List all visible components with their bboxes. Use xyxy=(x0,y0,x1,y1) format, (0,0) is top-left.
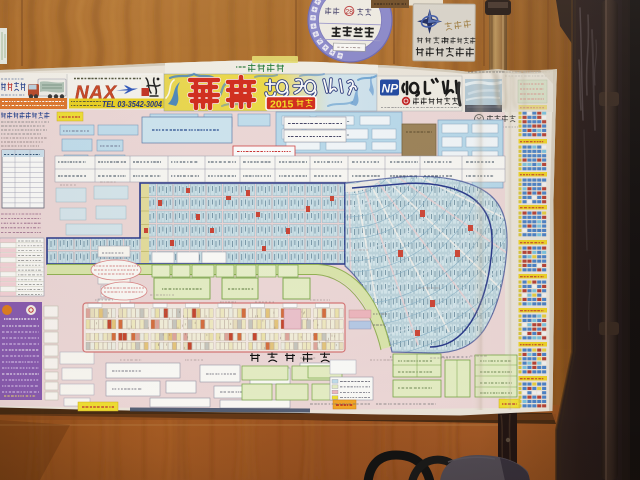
svg-text:2015: 2015 xyxy=(270,99,294,111)
svg-text:TEL 03-3542-3004: TEL 03-3542-3004 xyxy=(102,99,162,109)
svg-text:NP: NP xyxy=(382,82,400,96)
svg-text:28: 28 xyxy=(345,9,353,16)
